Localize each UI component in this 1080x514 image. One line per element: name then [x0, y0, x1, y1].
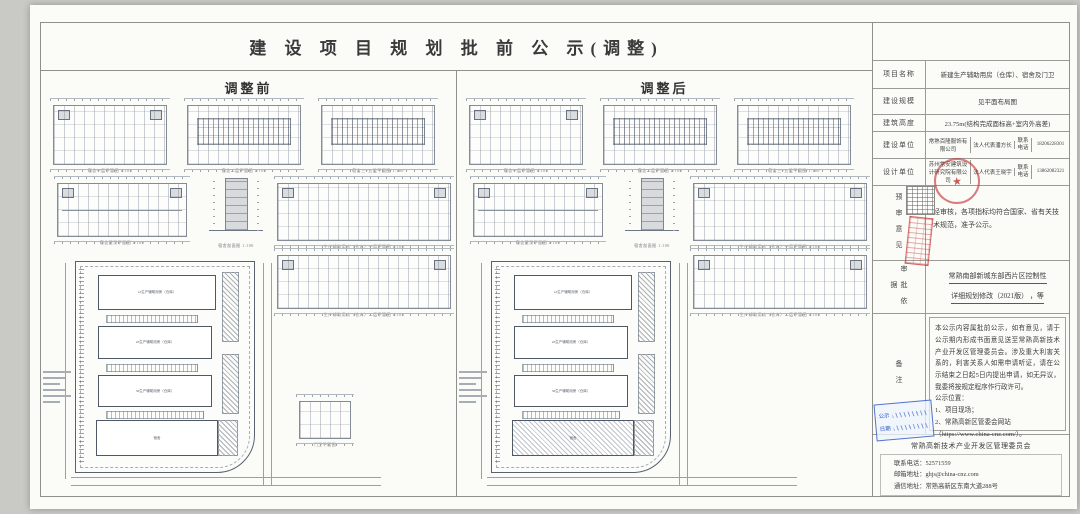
stair-bulkhead: [170, 188, 182, 198]
drawing-caption: 门卫平面图: [280, 442, 370, 448]
road-line: [687, 263, 688, 485]
stair-core: [474, 110, 486, 120]
green-hatch: [222, 354, 239, 414]
roof-plan: 宿舍屋顶平面图 1:100: [473, 183, 603, 237]
dorm-plan-typ: 宿舍三~五层平面图 1:100: [321, 105, 435, 165]
building-label: 3#生产辅助用房（仓库）: [552, 389, 591, 393]
scanned-sheet: 建 设 项 目 规 划 批 前 公 示(调整) 调整前 宿舍一层平面图 1:10…: [0, 0, 1080, 514]
table-row-project-name: 项目名称 新建生产辅助用房（仓库）、宿舍及门卫: [873, 61, 1069, 88]
site-building-1: 1#生产辅助用房（仓库）: [514, 275, 632, 310]
contact-email: 邮箱地址：ghjs@china-cnz.com: [894, 469, 1061, 480]
red-rect-seal: [905, 216, 934, 266]
dorm-plan-typ: 宿舍三~五层平面图 1:100: [737, 105, 851, 165]
stair-core: [434, 188, 446, 198]
drawing-caption: 宿舍一层平面图 1:100: [34, 168, 186, 174]
contact-address: 通信地址：常熟高新区东南大道288号: [894, 481, 1061, 492]
site-building-1: 1#生产辅助用房（仓库）: [98, 275, 216, 310]
tel-label: 联系电话: [1015, 138, 1032, 152]
warehouse-plan-2f: 生产辅助用房（仓库）二层平面图 1:100: [693, 255, 867, 309]
after-header: 调整后: [457, 78, 872, 97]
row-label: 设计单位: [873, 159, 926, 184]
stair-core: [282, 260, 294, 270]
building-label: 2#生产辅助用房（仓库）: [136, 340, 175, 344]
designer-phone: 13862082321: [1032, 169, 1069, 174]
canopy-strip: [522, 315, 614, 323]
road-line: [487, 477, 797, 478]
title-band: 建 设 项 目 规 划 批 前 公 示(调整): [41, 23, 872, 71]
green-hatch: [638, 272, 655, 342]
roof-plan: 宿舍屋顶平面图 1:100: [57, 183, 187, 237]
building-label: 2#生产辅助用房（仓库）: [552, 340, 591, 344]
boundary-hatch: [495, 268, 500, 462]
room-band: [747, 118, 841, 146]
section-building: [225, 178, 248, 232]
basis-line: 常熟南部新城东部西片区控制性: [949, 271, 1047, 284]
table-row-height: 建筑高度 23.75m(结构完成面标高+室内外高差): [873, 115, 1069, 132]
stair-core: [698, 188, 710, 198]
basis-line: 详细规划修改（2021版） ，等: [951, 291, 1044, 304]
site-building-2: 2#生产辅助用房（仓库）: [98, 326, 212, 359]
contact-block: 联系电话：52571559 邮箱地址：ghjs@china-cnz.com 通信…: [880, 454, 1062, 496]
dorm-plan-1f: 宿舍一层平面图 1:100: [469, 105, 583, 165]
drawing-area: 建 设 项 目 规 划 批 前 公 示(调整) 调整前 宿舍一层平面图 1:10…: [41, 23, 873, 496]
stair-core: [150, 110, 162, 120]
table-footer: 常熟高新技术产业开发区管理委员会 联系电话：52571559 邮箱地址：ghjs…: [873, 435, 1069, 496]
drawing-caption: 宿舍屋顶平面图 1:100: [38, 240, 206, 246]
site-plan: 1#生产辅助用房（仓库） 2#生产辅助用房（仓库） 3#生产辅助用房（仓库） 宿…: [491, 261, 671, 473]
warehouse-plan-1f: 生产辅助用房（仓库）一层平面图 1:100: [277, 183, 451, 241]
scale-value: 见平面布局图: [926, 89, 1069, 114]
builder-cells: 常熟百隆服饰有限公司 法人代表潘方长 联系电话 18206228301: [926, 132, 1069, 158]
dorm-plan-2f: 宿舍二层平面图 1:100: [603, 105, 717, 165]
warehouse-plan-2f: 生产辅助用房（仓库）二层平面图 1:100: [277, 255, 451, 309]
site-building-2: 2#生产辅助用房（仓库）: [514, 326, 628, 359]
row-label: 建设单位: [873, 132, 926, 158]
canopy-strip: [522, 411, 620, 419]
drawing-caption: 宿舍屋顶平面图 1:100: [454, 240, 622, 246]
drawing-caption: 生产辅助用房（仓库）二层平面图 1:100: [674, 312, 886, 318]
remark-content: 本公示内容属批前公示，如有意见，请于公示期内形成书面意见送至常熟高新技术产业开发…: [926, 314, 1069, 434]
room-band: [197, 118, 291, 146]
drawing-caption: 宿舍三~五层平面图 1:100: [302, 168, 454, 174]
building-label: 宿舍: [154, 436, 161, 440]
drawing-caption: 宿舍三~五层平面图 1:100: [718, 168, 870, 174]
row-label: 建筑高度: [873, 115, 926, 131]
road-line: [71, 477, 381, 478]
builder-phone: 18206228301: [1032, 142, 1069, 147]
roof-ridge: [478, 210, 598, 211]
info-table: 项目名称 新建生产辅助用房（仓库）、宿舍及门卫 建设规模 见平面布局图 建筑高度…: [873, 23, 1069, 496]
table-row-blank: [873, 23, 1069, 61]
roof-ridge: [62, 210, 182, 211]
row-label: 建设规模: [873, 89, 926, 114]
remark-loc-2: 2、常熟高新区管委会网站: [935, 417, 1060, 429]
row-label: 项目名称: [873, 61, 926, 87]
boundary-hatch: [79, 268, 84, 462]
page-title: 建 设 项 目 规 划 批 前 公 示(调整): [249, 34, 664, 59]
green-hatch: [638, 354, 655, 414]
road-line: [271, 263, 272, 485]
committee-name: 常熟高新技术产业开发区管理委员会: [873, 441, 1069, 451]
green-hatch: [634, 420, 654, 456]
site-building-3: 3#生产辅助用房（仓库）: [514, 375, 628, 407]
stair-core: [698, 260, 710, 270]
stair-core: [850, 260, 862, 270]
builder-company: 常熟百隆服饰有限公司: [926, 137, 971, 153]
rep-name: 王晓宇: [995, 168, 1012, 176]
site-building-dorm: 宿舍: [96, 420, 218, 456]
site-building-dorm: 宿舍: [512, 420, 634, 456]
section-drawing: 宿舍剖面图 1:100: [213, 175, 259, 239]
remark-box: 本公示内容属批前公示，如有意见，请于公示期内形成书面意见送至常熟高新技术产业开发…: [929, 317, 1066, 431]
remark-paragraph: 本公示内容属批前公示，如有意见，请于公示期内形成书面意见送至常熟高新技术产业开发…: [935, 323, 1060, 393]
site-plan: 1#生产辅助用房（仓库） 2#生产辅助用房（仓库） 3#生产辅助用房（仓库） 宿…: [75, 261, 255, 473]
building-label: 1#生产辅助用房（仓库）: [138, 290, 177, 294]
warehouse-plan-1f: 生产辅助用房（仓库）一层平面图 1:100: [693, 183, 867, 241]
site-building-3: 3#生产辅助用房（仓库）: [98, 375, 212, 407]
room-band: [331, 118, 425, 146]
canopy-strip: [106, 411, 204, 419]
canopy-strip: [106, 364, 198, 372]
before-header: 调整前: [41, 78, 456, 97]
drawing-caption: 生产辅助用房（仓库）二层平面图 1:100: [258, 312, 470, 318]
table-row-basis: 审批依据 常熟南部新城东部西片区控制性 详细规划修改（2021版） ，等: [873, 261, 1069, 314]
table-row-builder: 建设单位 常熟百隆服饰有限公司 法人代表潘方长 联系电话 18206228301: [873, 132, 1069, 159]
green-hatch: [218, 420, 238, 456]
stair-core: [282, 188, 294, 198]
ground-line: [625, 230, 679, 231]
basis-label: 审批依据: [873, 261, 926, 313]
certificate-stamp: [906, 186, 935, 215]
canopy-strip: [106, 315, 198, 323]
drawing-caption: 宿舍二层平面图 1:100: [168, 168, 320, 174]
site-legend: [459, 371, 487, 403]
guard-house-plan: 门卫平面图: [299, 401, 351, 439]
height-value: 23.75m(结构完成面标高+室内外高差): [926, 115, 1069, 131]
tel-label: 联系电话: [1015, 165, 1032, 179]
stair-bulkhead: [478, 188, 490, 198]
green-hatch: [222, 272, 239, 342]
approval-basis: 常熟南部新城东部西片区控制性 详细规划修改（2021版） ，等: [926, 261, 1069, 313]
seal-star: ★: [951, 174, 963, 188]
dorm-plan-1f: 宿舍一层平面图 1:100: [53, 105, 167, 165]
stair-core: [434, 260, 446, 270]
remark-loc-1: 1、项目现场；: [935, 405, 1060, 417]
rep-name: 潘方长: [995, 141, 1012, 149]
stair-bulkhead: [62, 188, 74, 198]
sheet-frame: 建 设 项 目 规 划 批 前 公 示(调整) 调整前 宿舍一层平面图 1:10…: [40, 22, 1070, 497]
contact-phone: 联系电话：52571559: [894, 458, 1061, 469]
blue-date-stamp: 公示 日期: [873, 400, 934, 442]
road-line: [263, 263, 264, 485]
stair-bulkhead: [586, 188, 598, 198]
rep-label: 法人代表: [973, 141, 995, 149]
room-band: [613, 118, 707, 146]
blue-stamp-label: 公示: [878, 411, 890, 420]
road-line: [679, 263, 680, 485]
section-drawing: 宿舍剖面图 1:100: [629, 175, 675, 239]
stair-core: [566, 110, 578, 120]
building-label: 1#生产辅助用房（仓库）: [554, 290, 593, 294]
handwritten-date: [892, 409, 928, 417]
stair-core: [850, 188, 862, 198]
project-name-value: 新建生产辅助用房（仓库）、宿舍及门卫: [926, 61, 1069, 87]
road-line: [71, 485, 381, 486]
dorm-plan-2f: 宿舍二层平面图 1:100: [187, 105, 301, 165]
section-building: [641, 178, 664, 232]
remark-loc-title: 公示位置：: [935, 393, 1060, 405]
handwritten-date: [893, 422, 929, 430]
building-label: 宿舍: [570, 436, 577, 440]
table-row-scale: 建设规模 见平面布局图: [873, 89, 1069, 115]
builder-representative: 法人代表潘方长: [971, 141, 1015, 149]
stair-core: [58, 110, 70, 120]
blue-stamp-label: 日期: [879, 424, 891, 433]
ground-line: [209, 230, 263, 231]
building-label: 3#生产辅助用房（仓库）: [136, 389, 175, 393]
canopy-strip: [522, 364, 614, 372]
drawing-caption: 宿舍二层平面图 1:100: [584, 168, 736, 174]
road-line: [487, 485, 797, 486]
drawing-caption: 宿舍一层平面图 1:100: [450, 168, 602, 174]
panel-after: 调整后 宿舍一层平面图 1:100 宿舍二层平面图 1:100 宿舍三~五层平面…: [456, 71, 872, 496]
site-legend: [43, 371, 71, 403]
panel-before: 调整前 宿舍一层平面图 1:100 宿舍二层平面图 1:100 宿舍三~五层平面…: [41, 71, 456, 496]
comparison-panels: 调整前 宿舍一层平面图 1:100 宿舍二层平面图 1:100 宿舍三~五层平面…: [41, 71, 872, 496]
paper: 建 设 项 目 规 划 批 前 公 示(调整) 调整前 宿舍一层平面图 1:10…: [30, 5, 1077, 509]
